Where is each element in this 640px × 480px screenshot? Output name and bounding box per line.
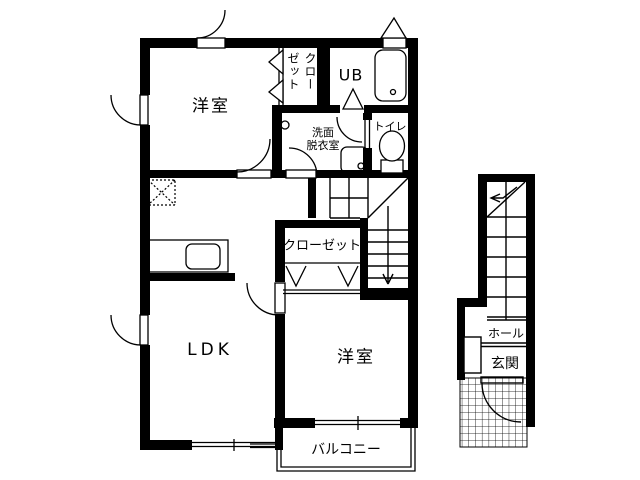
hatch-box bbox=[148, 180, 175, 205]
label-entrance: 玄関 bbox=[491, 353, 519, 373]
wall bbox=[272, 105, 340, 113]
balcony-partition-stub bbox=[250, 444, 277, 448]
closet-opening-line bbox=[283, 290, 360, 294]
wall bbox=[363, 113, 372, 120]
window-arc bbox=[111, 95, 141, 125]
wall bbox=[140, 440, 192, 450]
wall bbox=[317, 48, 330, 113]
window-arc bbox=[197, 10, 225, 38]
ub-door-arc bbox=[337, 117, 362, 142]
ldk-window bbox=[192, 439, 277, 451]
door-arc bbox=[237, 139, 270, 172]
door-arc bbox=[247, 283, 279, 315]
wall bbox=[360, 218, 368, 300]
label-washroom: 洗面 脱衣室 bbox=[307, 126, 340, 152]
bathtub-drain bbox=[391, 90, 396, 95]
closet-bifold-v bbox=[338, 266, 358, 286]
wall bbox=[400, 418, 418, 428]
closet-top-door-triangle bbox=[269, 80, 283, 103]
wall bbox=[140, 170, 237, 178]
label-washroom-line1: 洗面 bbox=[307, 126, 340, 139]
wall bbox=[360, 288, 418, 300]
wall bbox=[140, 125, 150, 315]
label-hall: ホール bbox=[488, 325, 524, 342]
wall bbox=[277, 220, 368, 228]
door-leaf bbox=[275, 283, 285, 313]
hatch-box-cross bbox=[148, 180, 175, 205]
shoe-cabinet bbox=[464, 337, 481, 373]
wall bbox=[140, 38, 150, 95]
wall bbox=[308, 178, 316, 218]
window-leaf bbox=[197, 38, 225, 48]
label-room-bottom: 洋室 bbox=[337, 343, 375, 368]
stairs-outside bbox=[460, 182, 527, 447]
kitchen-sink bbox=[186, 244, 220, 269]
wall bbox=[275, 314, 285, 428]
stair-down-arrow bbox=[383, 206, 393, 284]
bedroom-window bbox=[315, 416, 400, 430]
toilet-door-leaf bbox=[365, 120, 370, 148]
wall bbox=[478, 174, 487, 307]
label-ldk: LDK bbox=[187, 340, 233, 360]
wall bbox=[272, 105, 282, 178]
label-toilet: トイレ bbox=[374, 118, 407, 134]
closet-bifold-v bbox=[286, 266, 306, 286]
stair-treads bbox=[487, 182, 526, 320]
label-closet-top: クローゼット bbox=[284, 52, 318, 96]
entrance-porch-tiles bbox=[460, 378, 527, 447]
window-arc bbox=[111, 315, 141, 345]
wall bbox=[225, 38, 383, 48]
ub-window-triangle bbox=[381, 18, 406, 38]
toilet-base bbox=[381, 160, 403, 173]
floorplan-canvas: 洋室 クローゼット UB 洗面 脱衣室 トイレ クローゼット LDK 洋室 バル… bbox=[0, 0, 640, 480]
toilet-bowl bbox=[380, 131, 405, 161]
washer-tap bbox=[281, 121, 289, 129]
window-leaf bbox=[383, 38, 406, 48]
label-washroom-line2: 脱衣室 bbox=[307, 139, 340, 152]
stairs-interior bbox=[330, 178, 408, 284]
label-closet-center: クローゼット bbox=[283, 235, 361, 254]
stair-up-arrow bbox=[491, 187, 517, 202]
label-room-top: 洋室 bbox=[192, 92, 230, 117]
kitchen-counter-wall bbox=[145, 273, 235, 281]
wall bbox=[140, 345, 150, 450]
wall bbox=[364, 105, 418, 113]
door-leaf bbox=[286, 170, 316, 178]
stair-treads bbox=[330, 178, 368, 218]
label-balcony: バルコニー bbox=[311, 439, 381, 459]
window-leaf bbox=[140, 315, 148, 345]
closet-top-door-triangle bbox=[269, 50, 283, 74]
wall bbox=[274, 418, 315, 428]
label-ub: UB bbox=[339, 66, 364, 85]
window-leaf bbox=[140, 95, 148, 125]
wall bbox=[408, 38, 418, 428]
ub-door-triangle bbox=[343, 89, 363, 109]
